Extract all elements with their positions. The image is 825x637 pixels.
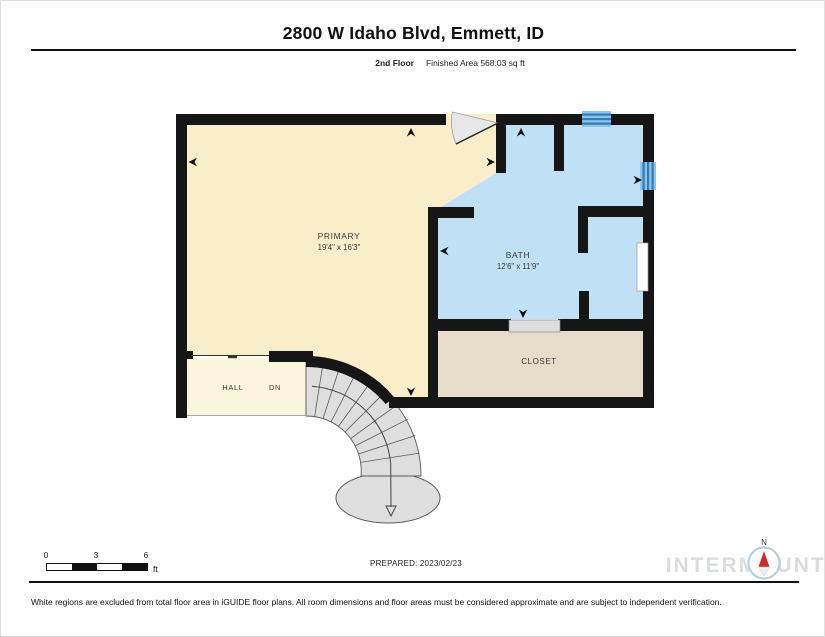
window-top-stripe: [582, 123, 611, 125]
watermark-text: INTERMOUNTAIN: [666, 554, 825, 577]
window-right-stripe: [647, 162, 649, 190]
floor-plan: INTERMOUNTAIN: [1, 1, 825, 637]
window-top: [582, 111, 611, 127]
wall-bath-closet-left: [438, 319, 511, 331]
floorplan-page: 2800 W Idaho Blvd, Emmett, ID 2nd Floor …: [0, 0, 825, 637]
wall-niche: [637, 243, 648, 291]
wall-primary-bath-divider: [428, 207, 438, 397]
wall-bath-L: [428, 207, 474, 218]
compass-icon: N: [749, 538, 780, 579]
prepared-date-label: PREPARED: 2023/02/23: [301, 559, 531, 568]
scale-bar: [46, 563, 148, 571]
scale-tick-3: 3: [90, 551, 102, 560]
floor-fills: [187, 114, 643, 416]
scale-bar-segment: [72, 564, 97, 570]
compass-north-label: N: [761, 538, 767, 547]
hall-floor: [187, 358, 308, 416]
hall-room-name: HALL: [222, 383, 243, 392]
stair-landing: [336, 473, 440, 523]
wall-left: [176, 114, 187, 418]
disclaimer-text: White regions are excluded from total fl…: [31, 597, 811, 607]
wall-shower-vertical: [578, 206, 588, 253]
footer-divider: [29, 581, 799, 583]
window-top-stripe: [582, 114, 611, 116]
wall-bath-top-stub: [554, 114, 564, 171]
closet-sliding-door: [509, 320, 560, 332]
primary-room-dims: 19'4" x 16'3": [318, 243, 361, 252]
scale-bar-segment: [47, 564, 72, 570]
window-right: [640, 162, 656, 190]
scale-bar-segment: [122, 564, 147, 570]
window-right-stripe: [652, 162, 654, 190]
wall-top-left: [176, 114, 446, 125]
closet-room-name: CLOSET: [521, 357, 557, 366]
scale-bar-segment: [97, 564, 122, 570]
scale-unit-label: ft: [153, 564, 158, 574]
wall-bath-closet-right: [558, 319, 643, 331]
bath-room-name: BATH: [506, 250, 530, 260]
stairs-dn-label: DN: [269, 383, 281, 392]
scale-tick-0: 0: [40, 551, 52, 560]
bath-room-dims: 12'6" x 11'9": [497, 262, 539, 271]
primary-room-name: PRIMARY: [318, 231, 361, 241]
wall-top-right: [498, 114, 654, 125]
scale-tick-6: 6: [140, 551, 152, 560]
wall-bottom: [389, 397, 654, 408]
window-top-stripe: [582, 118, 611, 120]
window-right-stripe: [643, 162, 645, 190]
